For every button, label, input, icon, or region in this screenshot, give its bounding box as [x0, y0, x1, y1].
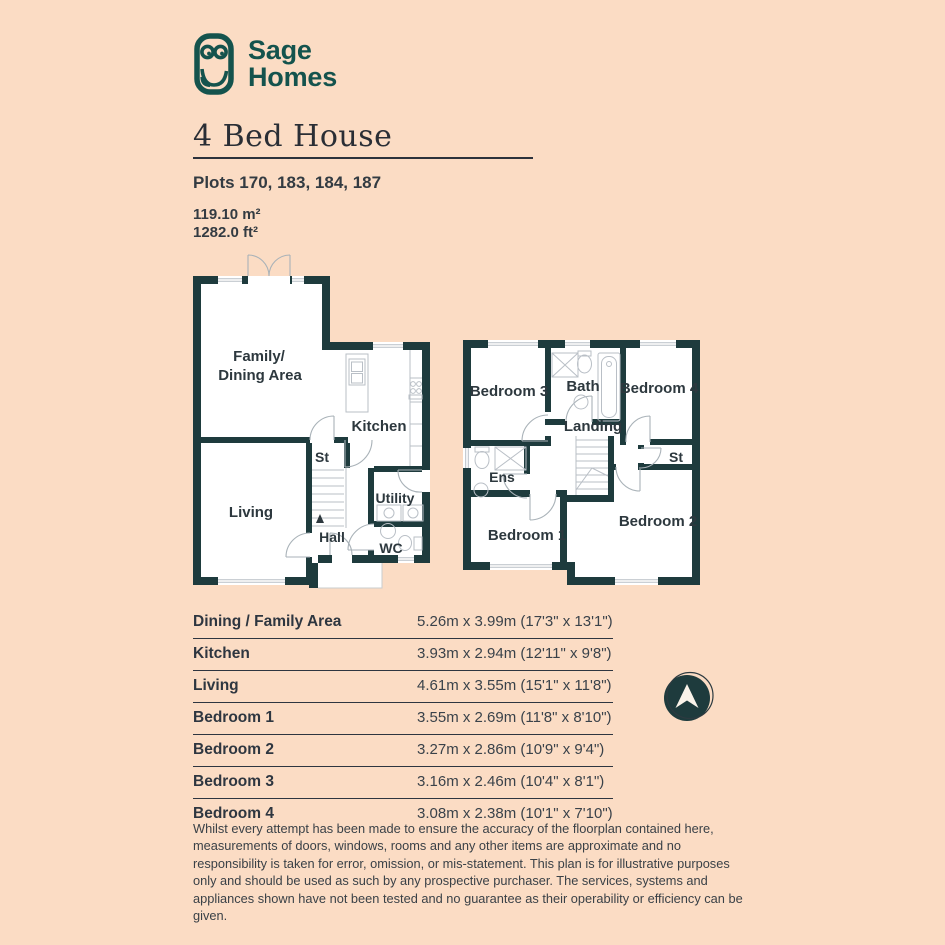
area-imperial: 1282.0 ft²: [193, 224, 261, 242]
floorplan-brochure-page: Sage Homes 4 Bed House Plots 170, 183, 1…: [0, 0, 945, 945]
floorplan-drawing: Family/ Dining Area Kitchen St Living Ut…: [185, 245, 730, 600]
north-compass-icon: [662, 671, 716, 725]
room-label-family-line1: Family/: [233, 348, 286, 365]
room-label-ens: Ens: [489, 469, 515, 485]
brand-name-line2: Homes: [248, 64, 337, 91]
area-metric: 119.10 m²: [193, 206, 261, 224]
room-label-family-line2: Dining Area: [218, 367, 302, 384]
room-size: 3.16m x 2.46m (10'4" x 8'1"): [417, 773, 613, 790]
room-size: 3.93m x 2.94m (12'11" x 9'8"): [417, 645, 613, 662]
room-name: Bedroom 2: [193, 741, 417, 759]
dimensions-table: Dining / Family Area 5.26m x 3.99m (17'3…: [193, 607, 613, 830]
plots-line: Plots 170, 183, 184, 187: [193, 173, 381, 193]
table-row: Bedroom 1 3.55m x 2.69m (11'8" x 8'10"): [193, 703, 613, 735]
table-row: Living 4.61m x 3.55m (15'1" x 11'8"): [193, 671, 613, 703]
brand-name: Sage Homes: [248, 33, 337, 91]
room-label-bedroom1: Bedroom 1: [488, 527, 566, 544]
table-row: Dining / Family Area 5.26m x 3.99m (17'3…: [193, 607, 613, 639]
room-label-utility: Utility: [376, 490, 415, 506]
room-name: Living: [193, 677, 417, 695]
room-name: Bedroom 1: [193, 709, 417, 727]
page-title: 4 Bed House: [193, 119, 392, 154]
room-name: Kitchen: [193, 645, 417, 663]
room-size: 4.61m x 3.55m (15'1" x 11'8"): [417, 677, 613, 694]
room-name: Dining / Family Area: [193, 613, 417, 631]
room-label-living: Living: [229, 504, 273, 521]
room-size: 5.26m x 3.99m (17'3" x 13'1"): [417, 613, 613, 630]
room-label-st-ground: St: [315, 449, 329, 465]
room-size: 3.55m x 2.69m (11'8" x 8'10"): [417, 709, 613, 726]
area-figures: 119.10 m² 1282.0 ft²: [193, 206, 261, 242]
ground-floor-plan: Family/ Dining Area Kitchen St Living Ut…: [193, 255, 430, 588]
title-rule: [193, 157, 533, 159]
room-label-landing: Landing: [564, 418, 622, 435]
brand-name-line1: Sage: [248, 37, 337, 64]
room-name: Bedroom 3: [193, 773, 417, 791]
table-row: Kitchen 3.93m x 2.94m (12'11" x 9'8"): [193, 639, 613, 671]
room-label-st-first: St: [669, 449, 683, 465]
owl-icon: [193, 33, 235, 95]
room-label-kitchen: Kitchen: [351, 418, 406, 435]
room-label-bedroom2: Bedroom 2: [619, 513, 697, 530]
table-row: Bedroom 2 3.27m x 2.86m (10'9" x 9'4"): [193, 735, 613, 767]
room-label-bedroom4: Bedroom 4: [620, 380, 699, 397]
room-label-wc: WC: [379, 540, 402, 556]
room-label-bath: Bath: [566, 378, 599, 395]
first-floor-plan: Bedroom 3 Bath Bedroom 4 Landing St Ens …: [463, 340, 700, 585]
room-label-bedroom3: Bedroom 3: [470, 383, 548, 400]
room-label-hall: Hall: [319, 529, 345, 545]
disclaimer-text: Whilst every attempt has been made to en…: [193, 820, 750, 924]
room-size: 3.27m x 2.86m (10'9" x 9'4"): [417, 741, 613, 758]
table-row: Bedroom 3 3.16m x 2.46m (10'4" x 8'1"): [193, 767, 613, 799]
sage-homes-logo: Sage Homes: [193, 33, 337, 95]
